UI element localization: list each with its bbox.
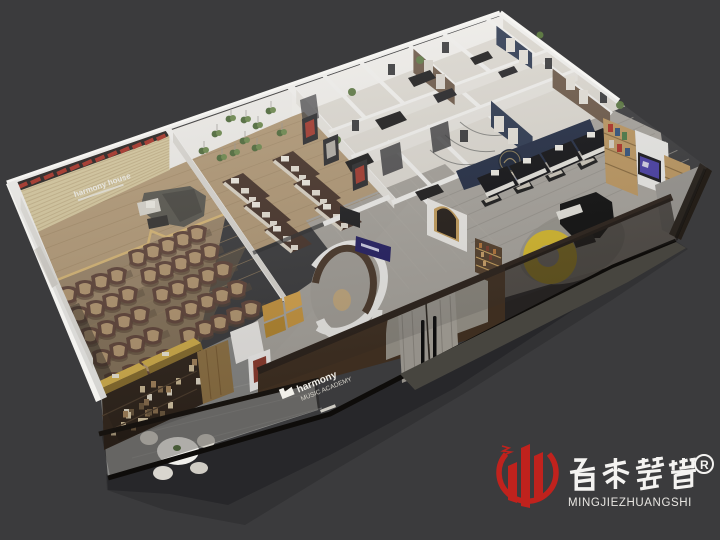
svg-text:MINGJIEZHUANGSHI: MINGJIEZHUANGSHI [568,497,692,509]
svg-text:R: R [700,458,709,472]
